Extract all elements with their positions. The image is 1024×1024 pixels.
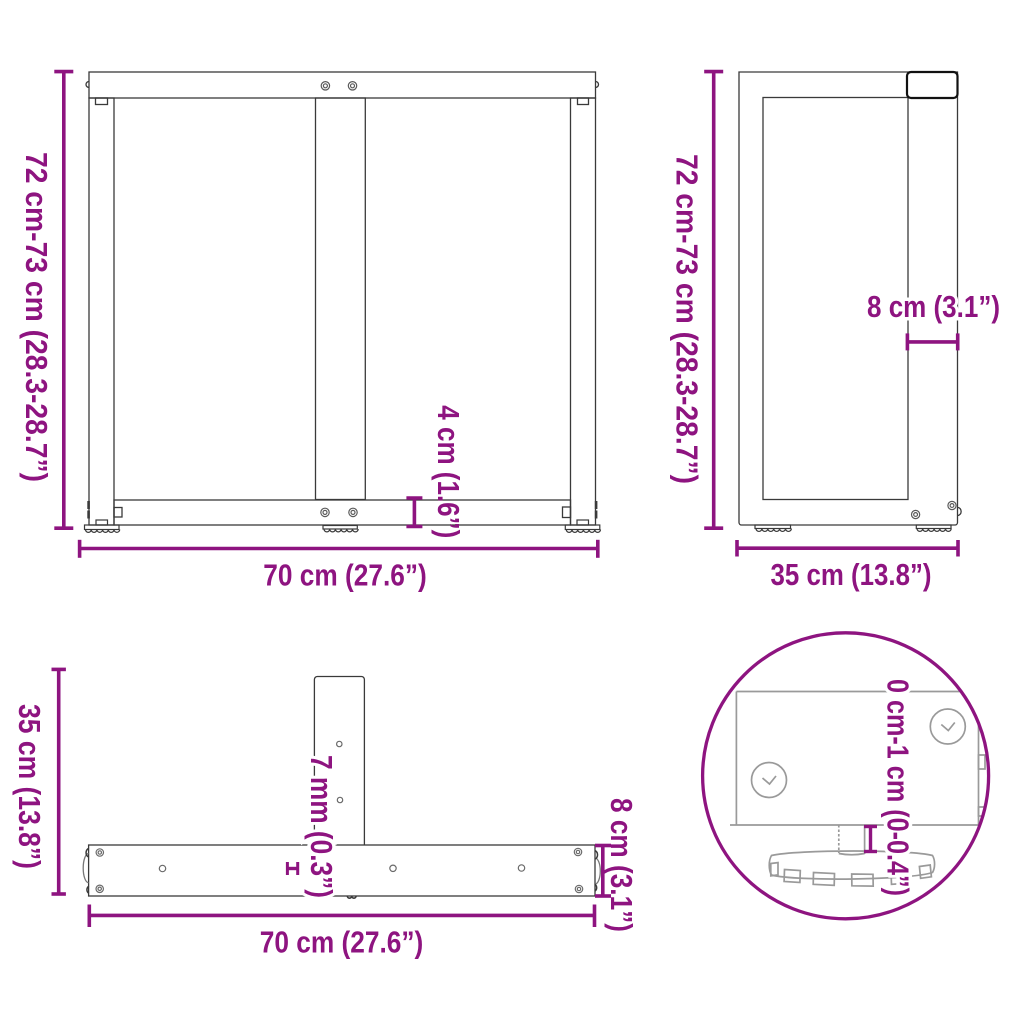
- svg-text:35 cm (13.8”): 35 cm (13.8”): [12, 704, 47, 869]
- svg-text:0 cm-1 cm (0-0.4”): 0 cm-1 cm (0-0.4”): [880, 679, 915, 896]
- svg-text:72 cm-73 cm (28.3-28.7”): 72 cm-73 cm (28.3-28.7”): [670, 154, 705, 484]
- svg-text:8 cm (3.1”): 8 cm (3.1”): [867, 289, 1000, 324]
- svg-text:70 cm (27.6”): 70 cm (27.6”): [263, 557, 427, 592]
- svg-text:35 cm (13.8”): 35 cm (13.8”): [771, 557, 932, 592]
- svg-text:7 mm (0.3”): 7 mm (0.3”): [304, 755, 339, 898]
- svg-text:8 cm (3.1”): 8 cm (3.1”): [604, 798, 639, 932]
- svg-text:72 cm-73 cm (28.3-28.7”): 72 cm-73 cm (28.3-28.7”): [19, 152, 54, 482]
- svg-text:4 cm (1.6”): 4 cm (1.6”): [431, 405, 466, 538]
- svg-text:70 cm (27.6”): 70 cm (27.6”): [260, 925, 424, 960]
